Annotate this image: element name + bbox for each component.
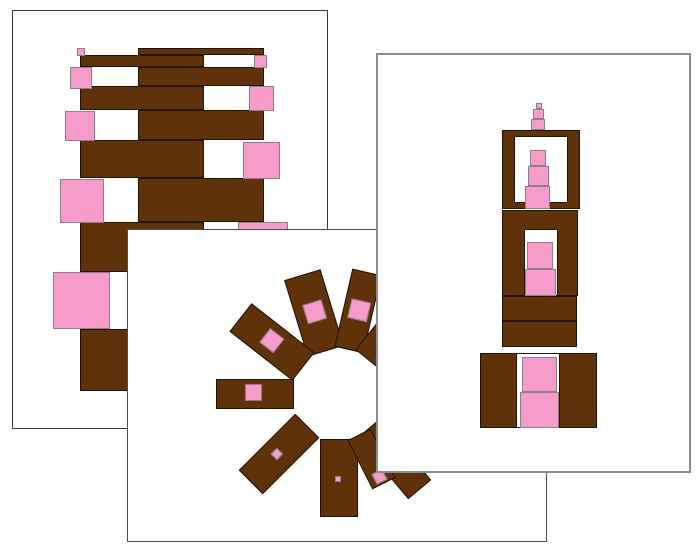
pink-cube bbox=[259, 328, 284, 353]
pink-cube bbox=[70, 67, 92, 89]
brown-prism bbox=[138, 178, 264, 222]
pink-tower-stack-card bbox=[376, 53, 691, 473]
pink-cube bbox=[530, 150, 546, 166]
brown-prism bbox=[80, 86, 204, 110]
brown-prism bbox=[502, 321, 577, 347]
brown-prism bbox=[138, 67, 264, 86]
pink-cube bbox=[347, 298, 371, 322]
pink-cube bbox=[522, 357, 557, 392]
brown-prism bbox=[138, 48, 264, 55]
pink-cube bbox=[335, 476, 341, 482]
pink-cube bbox=[528, 166, 549, 186]
pink-cube bbox=[520, 392, 559, 428]
pink-cube bbox=[525, 186, 550, 209]
brown-prism bbox=[502, 296, 577, 321]
pink-cube bbox=[254, 55, 267, 68]
brown-prism bbox=[138, 110, 264, 140]
pink-cube bbox=[249, 86, 274, 111]
pink-cube bbox=[533, 109, 544, 119]
pink-cube bbox=[246, 385, 263, 402]
pink-cube bbox=[302, 299, 327, 324]
brown-stair-ray bbox=[216, 379, 294, 409]
brown-stair-ray bbox=[239, 414, 320, 495]
pink-cube bbox=[271, 448, 284, 461]
pink-cube bbox=[243, 142, 280, 179]
page-background bbox=[0, 0, 700, 552]
brown-prism bbox=[80, 55, 204, 67]
pink-cube bbox=[527, 242, 553, 269]
brown-prism bbox=[80, 140, 204, 178]
pink-cube bbox=[65, 111, 95, 141]
pink-cube bbox=[60, 179, 104, 223]
pink-cube bbox=[525, 269, 556, 296]
pink-cube bbox=[77, 48, 85, 56]
pink-cube bbox=[531, 119, 545, 130]
pink-cube bbox=[53, 272, 110, 329]
